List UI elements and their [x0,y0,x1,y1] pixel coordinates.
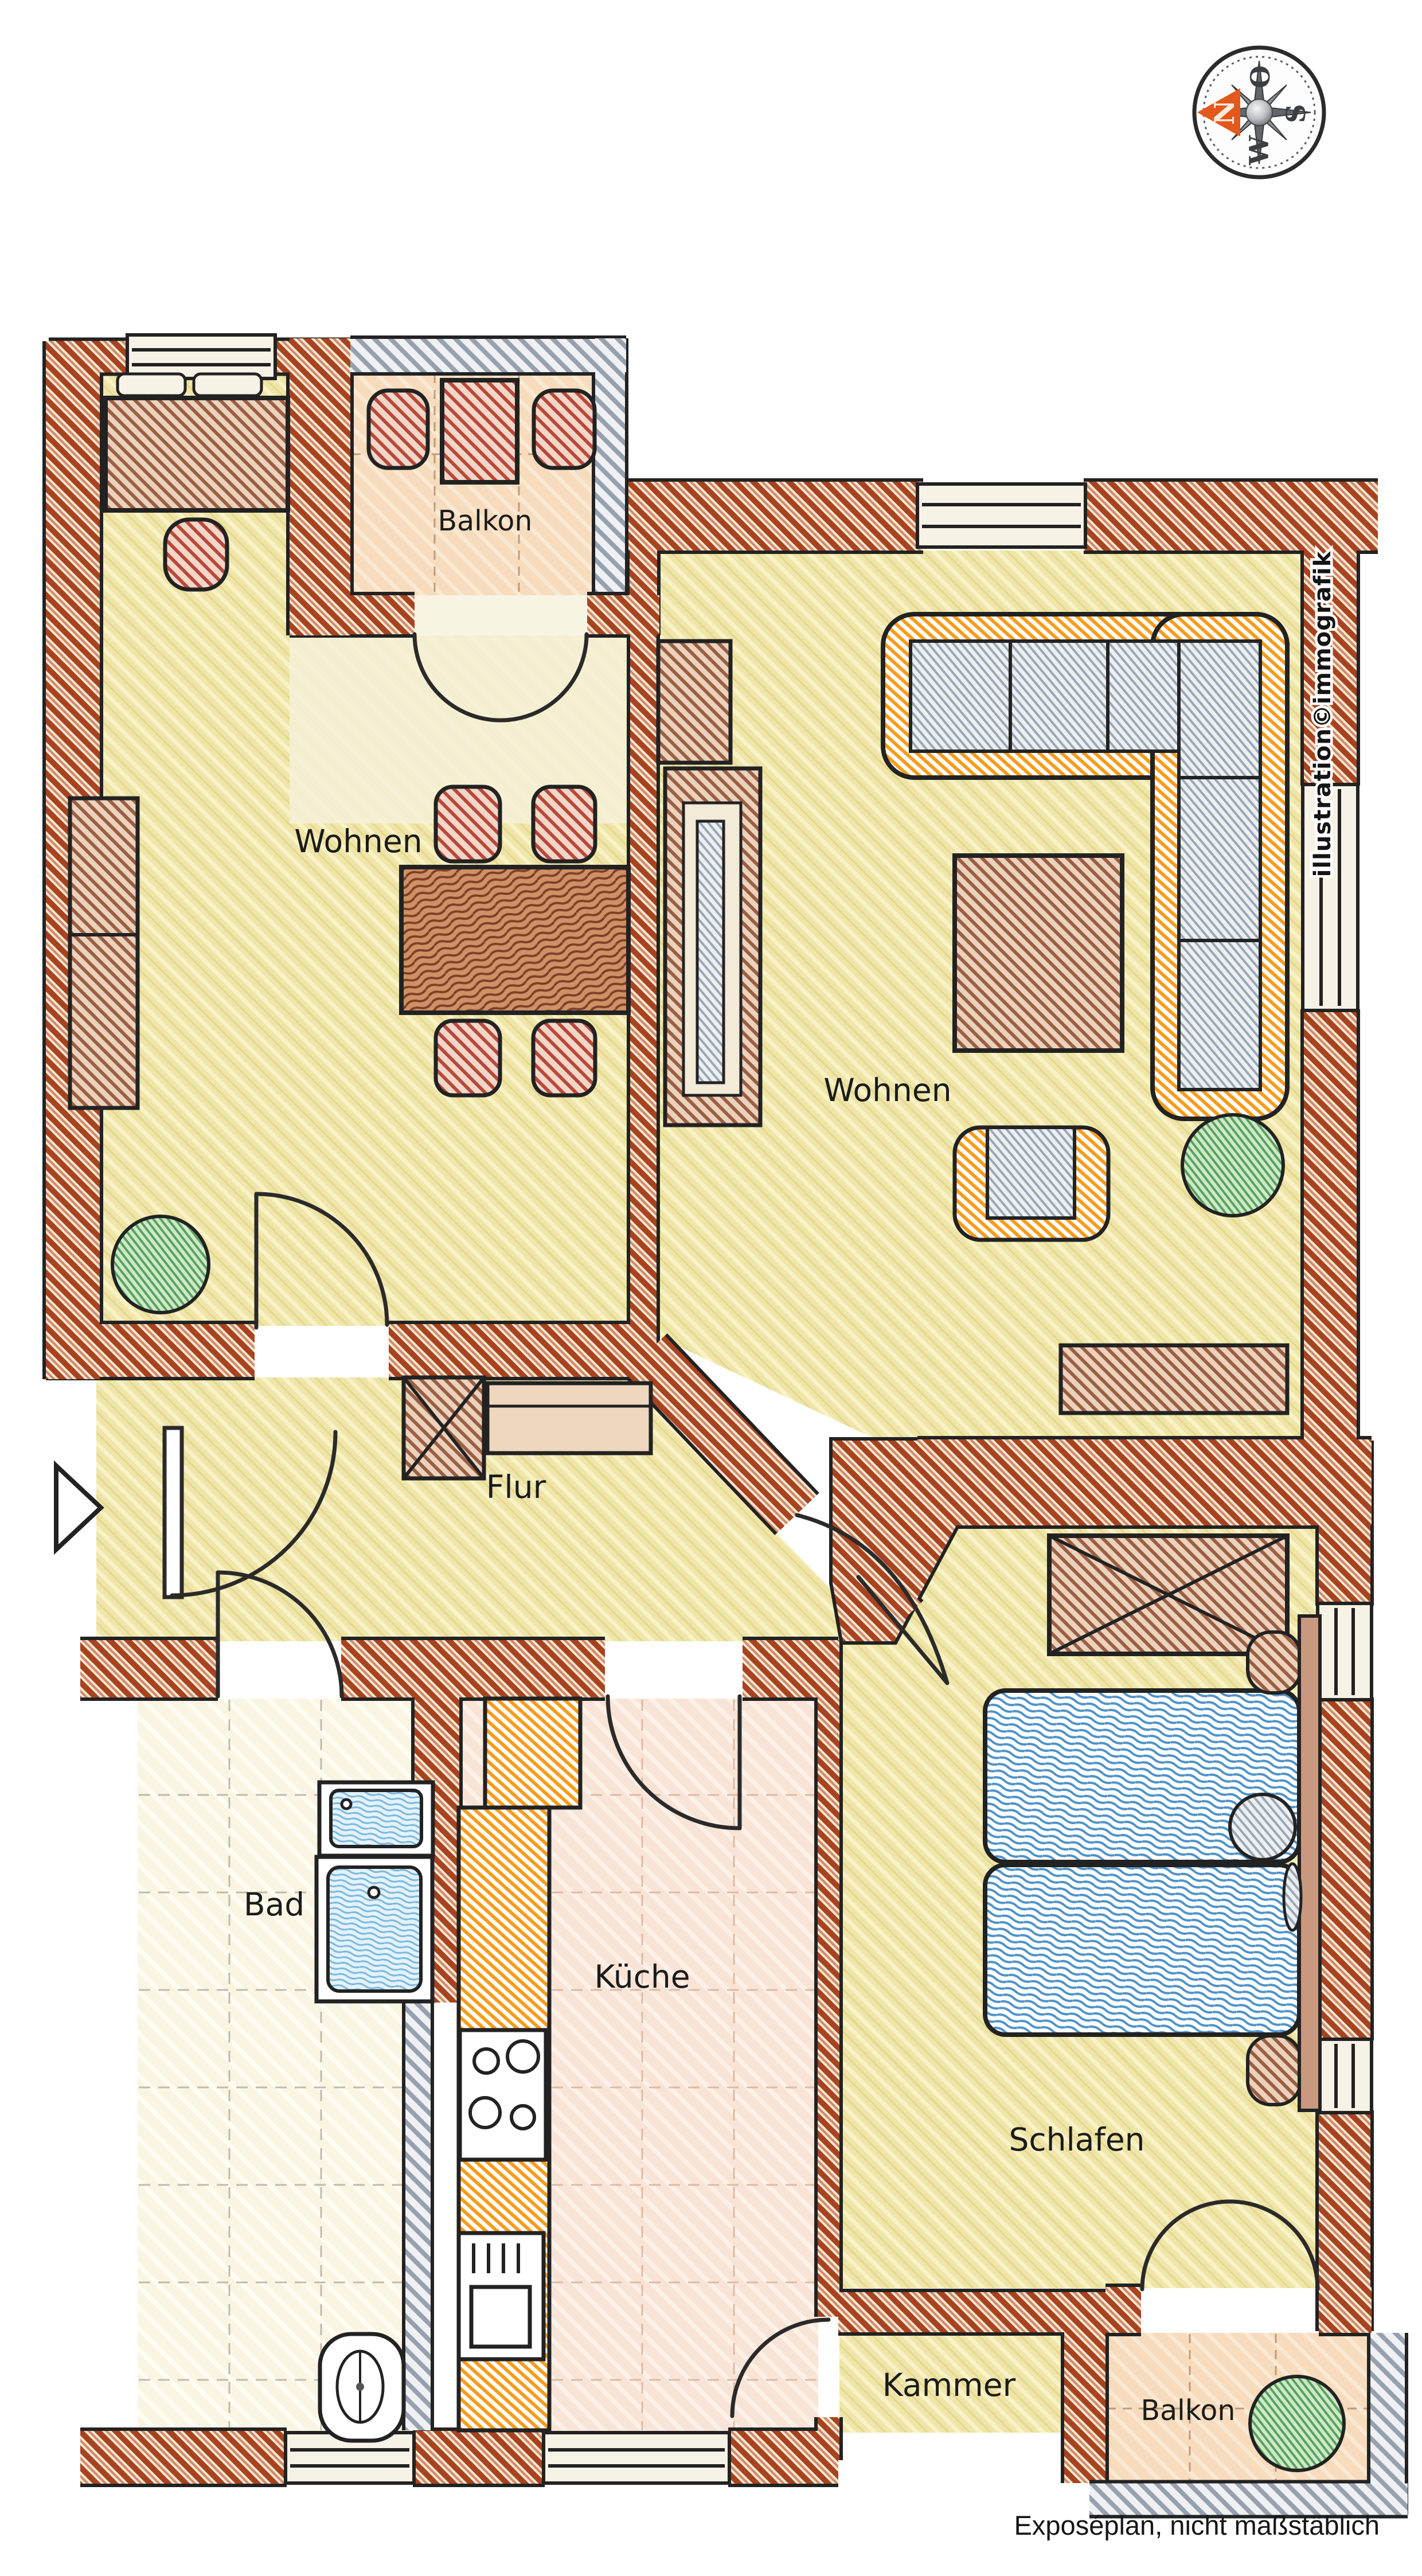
sideboard-left [70,798,138,1108]
balcony-door-threshold [415,595,587,635]
tv-icon [697,821,724,1083]
plant-icon [1182,1115,1283,1216]
sofa-cushions [911,641,1206,751]
storage-label: Kammer [882,2367,1016,2403]
hall-shelf [487,1383,651,1453]
dining-chair [533,1021,595,1095]
compass-letter-south: S [1280,104,1311,123]
armchair-cushion [987,1127,1075,1218]
footer-note: Exposéplan, nicht maßstäblich [1014,2510,1380,2540]
dining-chair [436,787,500,861]
kitchen-sink [459,2233,544,2359]
window-kitchen [544,2433,729,2483]
window-top-right [917,484,1085,547]
balcony-bottom-label: Balkon [1141,2394,1236,2427]
tv-cabinet-top [658,641,730,763]
window-bedroom-upper [1318,1603,1372,1700]
kitchen-counter-top [485,1699,580,1808]
dining-chair [533,787,595,861]
kitchen-label: Küche [594,1958,690,1995]
compass-rose: N O S W [1194,48,1324,177]
bed-mattress [985,1865,1299,2035]
watermark-text: illustration©immografik [1310,551,1336,877]
plant-icon [112,1216,209,1313]
sofa-pillow [118,374,185,396]
balcony-top-label: Balkon [438,505,533,537]
window-top-left [127,335,275,378]
headboard [1299,1616,1320,2110]
bedroom-label: Schlafen [1009,2121,1144,2158]
bathroom-label: Bad [244,1886,304,1923]
floor-plan-page: N O S W [0,0,1422,2576]
living-right-label: Wohnen [823,1072,951,1109]
balcony-chair-right [534,391,595,468]
sofa-cushions [1179,641,1260,1090]
floor-plan-canvas: N O S W [0,0,1422,2576]
balcony-table [442,380,517,482]
armchair-red [165,520,227,590]
dining-table [401,867,628,1013]
coffee-table [955,856,1122,1051]
living-left-label: Wohnen [294,823,422,860]
sofa-pillow [194,374,261,396]
sideboard-bottom [1061,1345,1287,1413]
balcony-chair-left [369,391,428,468]
compass-letter-east: O [1245,65,1276,88]
bed-pillow [1230,1794,1295,1860]
balcony-top-furniture [369,380,595,482]
plant-icon [1250,2376,1344,2470]
window-bedroom-lower [1318,2039,1372,2113]
hallway-label: Flur [486,1469,546,1505]
stove [460,2030,546,2160]
compass-center-sphere [1246,99,1272,126]
compass-letter-west: W [1244,135,1275,166]
headboard-end [1248,2036,1300,2105]
dining-chair [436,1021,500,1095]
toilet [320,2334,404,2441]
headboard-end [1248,1632,1300,1693]
compass-letter-north: N [1209,100,1241,125]
sofa [106,398,288,510]
entrance-arrow-icon [56,1466,101,1549]
bed-cushion [1284,1864,1301,1930]
